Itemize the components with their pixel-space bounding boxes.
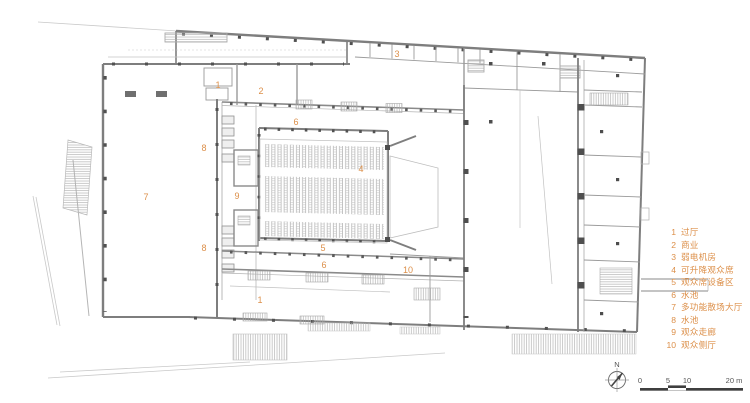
legend-item-number: 5 <box>664 276 676 289</box>
legend-item-label: 观众席设备区 <box>681 276 734 289</box>
plan-label-1b: 1 <box>257 295 262 305</box>
legend-item-label: 水池 <box>681 314 699 327</box>
legend-item-label: 观众侧厅 <box>681 339 716 352</box>
exterior-stair-west <box>63 140 92 215</box>
legend: 1过厅 2商业 3弱电机房 4可升降观众席 5观众席设备区 6水池 7多功能散场… <box>664 226 750 351</box>
legend-item-5: 5观众席设备区 <box>664 276 750 289</box>
scale-tick-0: 0 <box>638 376 642 385</box>
plan-label-8b: 8 <box>201 243 206 253</box>
plan-label-3: 3 <box>394 49 399 59</box>
legend-item-number: 7 <box>664 301 676 314</box>
legend-item-4: 4可升降观众席 <box>664 264 750 277</box>
floor-plan-drawing: 1 2 3 6 8 4 9 7 5 8 6 10 1 N 0 5 10 20 m <box>0 0 750 403</box>
legend-item-label: 过厅 <box>681 226 699 239</box>
room-10 <box>390 254 464 322</box>
legend-item-2: 2商业 <box>664 239 750 252</box>
legend-item-number: 3 <box>664 251 676 264</box>
plan-label-9: 9 <box>234 191 239 201</box>
scale-bar: 0 5 10 20 m <box>638 376 743 391</box>
legend-item-label: 商业 <box>681 239 699 252</box>
plan-label-5: 5 <box>320 243 325 253</box>
legend-item-label: 水池 <box>681 289 699 302</box>
south-steps <box>233 323 636 360</box>
legend-item-9: 9观众走廊 <box>664 326 750 339</box>
legend-item-number: 2 <box>664 239 676 252</box>
legend-item-label: 弱电机房 <box>681 251 716 264</box>
plan-label-6b: 6 <box>321 260 326 270</box>
plan-label-10: 10 <box>403 265 413 275</box>
legend-item-6: 6水池 <box>664 289 750 302</box>
plan-label-4: 4 <box>358 164 363 174</box>
legend-item-number: 9 <box>664 326 676 339</box>
north-arrow: N <box>605 360 629 392</box>
scale-tick-5: 5 <box>666 376 670 385</box>
legend-item-number: 4 <box>664 264 676 277</box>
stage-area <box>385 136 438 250</box>
legend-item-8: 8水池 <box>664 314 750 327</box>
legend-item-label: 可升降观众席 <box>681 264 734 277</box>
legend-item-1: 1过厅 <box>664 226 750 239</box>
plan-label-8a: 8 <box>201 143 206 153</box>
plan-label-2: 2 <box>258 86 263 96</box>
legend-item-3: 3弱电机房 <box>664 251 750 264</box>
plan-label-6a: 6 <box>293 117 298 127</box>
plan-label-7: 7 <box>143 192 148 202</box>
legend-item-number: 8 <box>664 314 676 327</box>
legend-item-7: 7多功能散场大厅 <box>664 301 750 314</box>
scale-tick-10: 10 <box>683 376 691 385</box>
plan-label-1a: 1 <box>215 80 220 90</box>
legend-item-label: 观众走廊 <box>681 326 716 339</box>
legend-item-label: 多功能散场大厅 <box>681 301 743 314</box>
north-wing <box>108 33 645 112</box>
scale-tick-20: 20 m <box>726 376 743 385</box>
legend-item-10: 10观众侧厅 <box>664 339 750 352</box>
legend-item-number: 10 <box>664 339 676 352</box>
floor-plan-page: 1 2 3 6 8 4 9 7 5 8 6 10 1 N 0 5 10 20 m… <box>0 0 750 403</box>
auditorium-seats <box>263 144 384 239</box>
north-label: N <box>614 360 619 369</box>
legend-item-number: 1 <box>664 226 676 239</box>
legend-item-number: 6 <box>664 289 676 302</box>
hall-7-interior <box>125 91 234 317</box>
